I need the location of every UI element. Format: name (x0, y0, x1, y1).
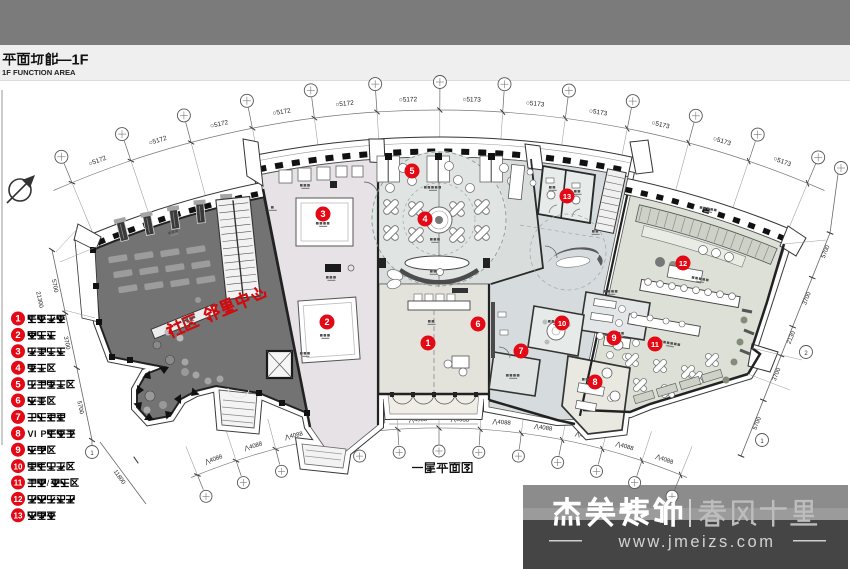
svg-text:5700: 5700 (75, 400, 84, 415)
svg-text:6: 6 (15, 396, 20, 407)
svg-text:3: 3 (320, 209, 325, 219)
svg-text:1: 1 (425, 338, 430, 348)
svg-text:⋀4088: ⋀4088 (614, 440, 635, 452)
svg-text:4: 4 (15, 363, 21, 374)
svg-text:10: 10 (14, 462, 23, 471)
svg-text:12: 12 (14, 495, 23, 504)
svg-text:11: 11 (651, 340, 659, 349)
svg-text:8: 8 (15, 429, 20, 440)
svg-text:7: 7 (15, 412, 20, 423)
svg-text:5700: 5700 (50, 279, 59, 294)
svg-text:4: 4 (422, 214, 427, 224)
svg-text:13: 13 (14, 512, 23, 521)
svg-text:○5172: ○5172 (335, 100, 354, 109)
svg-text:○5173: ○5173 (526, 100, 545, 109)
svg-text:2: 2 (15, 330, 20, 341)
svg-text:2: 2 (324, 317, 329, 327)
svg-text:○5172: ○5172 (272, 107, 292, 117)
svg-text:10: 10 (558, 319, 566, 328)
svg-text:○5173: ○5173 (772, 155, 792, 168)
svg-text:1F FUNCTION AREA: 1F FUNCTION AREA (2, 68, 76, 77)
svg-text:⋀4088: ⋀4088 (654, 453, 675, 466)
svg-text:—1F: —1F (57, 53, 89, 69)
svg-text:○5173: ○5173 (462, 96, 481, 104)
svg-text:2130: 2130 (787, 330, 798, 345)
svg-text:○5172: ○5172 (399, 96, 418, 104)
svg-text:12: 12 (679, 259, 687, 268)
svg-text:V: V (28, 429, 34, 439)
svg-text:13: 13 (563, 192, 571, 201)
svg-text:1: 1 (15, 314, 21, 325)
svg-text:⋀4088: ⋀4088 (491, 418, 512, 427)
svg-text:9: 9 (611, 333, 616, 343)
svg-text:3: 3 (15, 347, 20, 358)
svg-text:○5172: ○5172 (88, 155, 108, 168)
svg-text:21300: 21300 (34, 291, 43, 309)
svg-text:I: I (34, 429, 37, 439)
svg-text:9: 9 (15, 445, 20, 456)
svg-text:○5172: ○5172 (210, 119, 230, 130)
svg-text:/: / (47, 478, 50, 488)
svg-text:○5172: ○5172 (148, 135, 168, 147)
svg-text:6: 6 (475, 319, 480, 329)
svg-text:8: 8 (592, 377, 597, 387)
svg-text:○5173: ○5173 (712, 135, 732, 147)
svg-text:⋀4088: ⋀4088 (203, 453, 224, 466)
svg-text:11800: 11800 (112, 469, 127, 486)
svg-text:3700: 3700 (772, 367, 783, 382)
svg-text:○5173: ○5173 (651, 120, 671, 131)
svg-text:○5173: ○5173 (588, 108, 608, 118)
svg-text:7: 7 (518, 346, 523, 356)
svg-text:5: 5 (409, 166, 414, 176)
svg-text:P: P (41, 429, 47, 439)
svg-text:www.jmeizs.com: www.jmeizs.com (618, 533, 776, 551)
svg-text:3700: 3700 (802, 291, 813, 306)
svg-text:5: 5 (15, 379, 21, 390)
svg-text:5700: 5700 (821, 244, 832, 259)
svg-text:11: 11 (14, 479, 23, 488)
svg-text:⋀4088: ⋀4088 (243, 440, 264, 452)
svg-text:5700: 5700 (752, 416, 763, 431)
